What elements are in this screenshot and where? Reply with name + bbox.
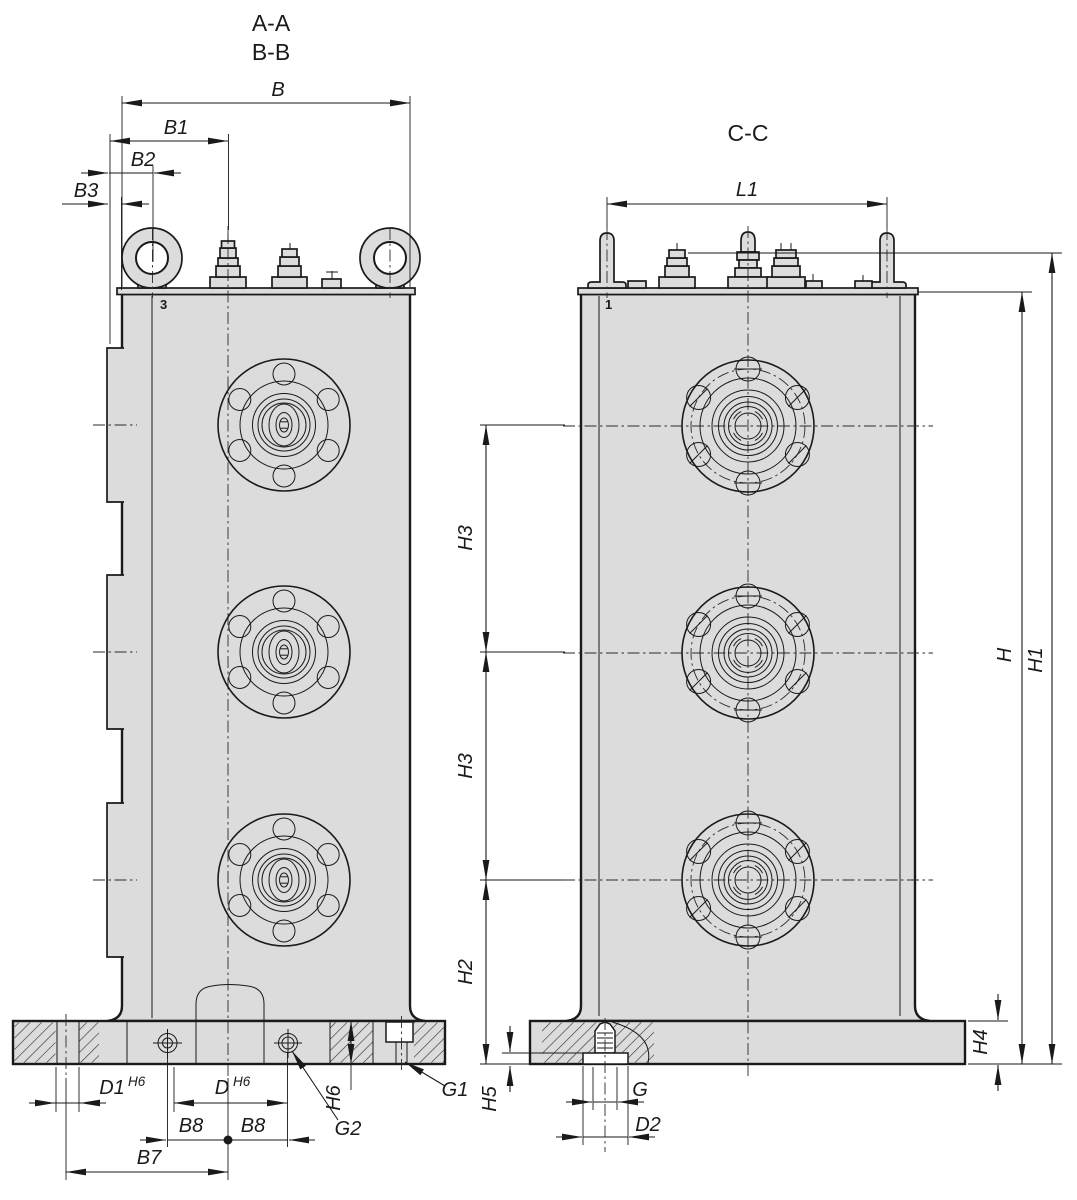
left-view (13, 228, 445, 1064)
dim-label-d-tol: H6 (233, 1074, 251, 1089)
g1-leader (405, 1062, 445, 1086)
left-top-plate (117, 288, 415, 295)
dim-label-l1: L1 (736, 179, 758, 201)
item-marker-1: 1 (605, 297, 612, 312)
dim-label-h2: H2 (455, 959, 477, 985)
dim-label-b3: B3 (74, 180, 98, 202)
item-marker-3: 3 (160, 297, 167, 312)
dim-label-b2: B2 (131, 149, 155, 171)
dim-label-d1: D1 (99, 1077, 125, 1099)
dim-label-h1: H1 (1025, 647, 1047, 673)
section-label-aa: A-A (252, 10, 291, 36)
dim-label-g2: G2 (335, 1118, 362, 1140)
left-top-plugs (210, 233, 341, 288)
eyebolt-left (122, 228, 182, 288)
dim-label-h6: H6 (323, 1084, 345, 1110)
left-base (13, 1021, 445, 1064)
dim-label-h4: H4 (970, 1029, 992, 1055)
right-top-plugs (628, 232, 872, 288)
section-label-cc: C-C (728, 120, 769, 146)
left-body (107, 294, 425, 1021)
dim-label-h: H (994, 647, 1016, 662)
section-label-bb: B-B (252, 39, 290, 65)
dim-label-b1: B1 (164, 117, 188, 139)
dim-label-h3-lower: H3 (455, 753, 477, 779)
technical-drawing: A-A B-B C-C B B1 B2 B3 L1 H H1 H3 H3 H2 … (0, 0, 1077, 1200)
dim-label-b8-right: B8 (241, 1115, 265, 1137)
dim-label-g: G (632, 1079, 648, 1101)
dim-label-d2: D2 (635, 1114, 661, 1136)
g1-counterbore (386, 1022, 413, 1042)
dim-label-b7: B7 (137, 1147, 162, 1169)
dim-label-b8-left: B8 (179, 1115, 203, 1137)
dim-label-h5: H5 (479, 1085, 501, 1111)
dim-label-g1: G1 (442, 1079, 469, 1101)
dim-label-b: B (271, 79, 284, 101)
dim-label-h3-upper: H3 (455, 525, 477, 551)
dim-label-d1-tol: H6 (128, 1074, 146, 1089)
stud-washer (583, 1053, 628, 1064)
dim-label-d: D (215, 1077, 229, 1099)
drawing-canvas: A-A B-B C-C B B1 B2 B3 L1 H H1 H3 H3 H2 … (0, 0, 1077, 1200)
